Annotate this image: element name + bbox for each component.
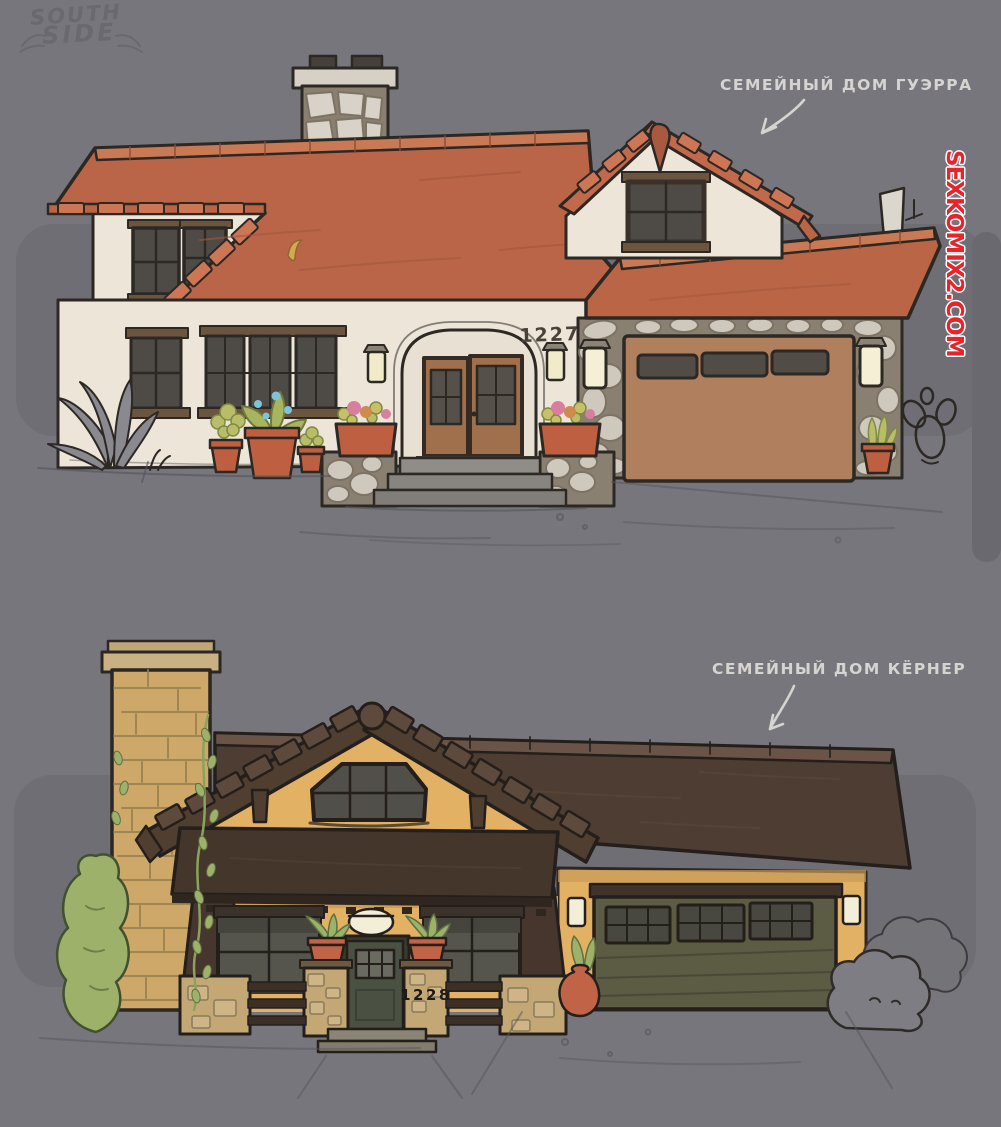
porch-roof [172,828,558,916]
house-1-window-single [124,328,190,418]
house-2-caption: СЕМЕЙНЫЙ ДОМ КЁРНЕР [712,660,966,678]
house-2-garage-door [594,897,836,1009]
ridge-finial-2 [359,703,385,729]
house-1-chimney [293,56,397,150]
flower-box-left [336,401,396,456]
house-1-garage [578,318,902,481]
house-1-gable-window [622,172,710,252]
flower-box-right [540,401,600,456]
backdrop-shade [972,232,1001,562]
garage-lantern-left-2 [568,898,585,926]
garage-lantern-right [856,338,886,386]
house-2-front-door [341,936,409,1033]
illustration-canvas: 1227 [0,0,1001,1127]
house-2-porch: 1228 [172,828,566,1052]
house-1-garage-door [624,336,854,481]
entry-lantern-left [364,345,388,382]
house-1-caption: СЕМЕЙНЫЙ ДОМ ГУЭРРА [720,76,973,94]
house-number-1228: 1228 [400,986,452,1004]
arrow-down-icon [752,96,812,142]
entry-lantern-right [543,343,567,380]
garage-lantern-right-2 [843,896,860,924]
garage-lantern-left [580,340,610,388]
house-1-front-door [424,356,522,456]
house-number-1227: 1227 [519,323,581,347]
watermark-sexkomix: SEXKOMIX2.COM [941,150,967,370]
front-steps [374,458,566,506]
house-2-garage [558,868,866,1010]
porch-light [349,909,393,935]
arrow-down-icon [764,682,804,738]
porch-steps [328,1029,426,1041]
comic-page: 1227 [0,0,1001,1127]
southside-logo: SOUTH SIDE [16,2,146,68]
logo-line2: SIDE [41,16,146,49]
